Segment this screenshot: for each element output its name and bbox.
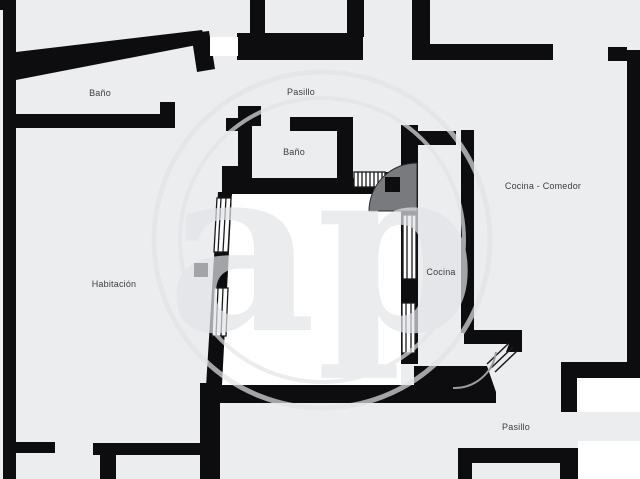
white-notch-right (577, 378, 640, 412)
wall-entry-thick (237, 33, 363, 60)
wall-pasillo-bl-vert (458, 448, 472, 479)
room-label-cocina: Cocina (426, 267, 455, 277)
wall-bano1-bottom (16, 114, 162, 128)
wall-topleft-corner (0, 0, 16, 10)
wall-entry-pier-left (250, 0, 265, 36)
wall-entry-pier-right (347, 0, 364, 37)
wall-bottom-seg1 (13, 442, 55, 453)
wall-right-outer (627, 50, 640, 382)
wall-bottom-vert1 (100, 443, 116, 479)
entry-door-gap (210, 37, 238, 56)
wall-top-right-stub (608, 47, 627, 61)
wall-habitacion-right-vert (200, 383, 220, 479)
watermark-logo-text: ap (167, 115, 477, 385)
watermark: ap (154, 72, 490, 408)
wall-pasillo-top (561, 362, 640, 378)
wall-cocina-comedor-top (412, 44, 553, 60)
white-corner-bottom-right (578, 441, 640, 479)
floor-plan-drawing: ap (0, 0, 640, 479)
wall-pasillo-br-vert (560, 448, 578, 479)
room-label-bano-top-left: Baño (89, 88, 111, 98)
room-label-pasillo-bottom: Pasillo (502, 422, 530, 432)
room-label-pasillo-top: Pasillo (287, 87, 315, 97)
floor-plan-image: ap Baño Pasillo Baño Cocina - Comedor Ha… (0, 0, 640, 479)
room-label-cocina-comedor: Cocina - Comedor (505, 181, 581, 191)
room-label-habitacion: Habitación (92, 279, 137, 289)
room-label-bano-middle: Baño (283, 147, 305, 157)
wall-left-outer (3, 0, 16, 479)
wall-top-pier (412, 0, 430, 50)
